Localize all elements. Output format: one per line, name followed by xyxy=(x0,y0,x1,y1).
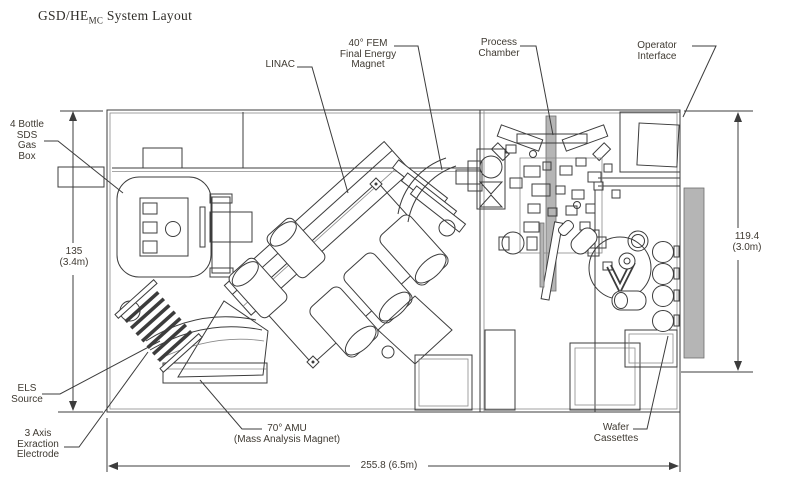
roof-vent-box xyxy=(143,148,182,168)
wafer-robot xyxy=(557,219,651,310)
label-amu-magnet: 70° AMU (Mass Analysis Magnet) xyxy=(234,424,340,445)
operator-interface-box xyxy=(620,112,680,172)
dimension-text-right: 119.4 (3.0m) xyxy=(733,232,762,253)
system-layout-page: GSD/HEMC System Layout xyxy=(0,0,787,495)
label-operator-interface: Operator Interface xyxy=(637,41,676,62)
gas-box xyxy=(117,177,211,277)
label-extraction-electrode: 3 Axis Exraction Electrode xyxy=(17,429,59,461)
label-els-source: ELS Source xyxy=(11,384,43,405)
dimension-text-left: 135 (3.4m) xyxy=(60,247,89,268)
label-linac: LINAC xyxy=(266,60,295,71)
label-wafer-cassettes: Wafer Cassettes xyxy=(594,423,638,444)
process-chamber-assembly xyxy=(477,116,620,300)
vacuum-pump-cylinders xyxy=(227,212,452,361)
label-fem: 40° FEM Final Energy Magnet xyxy=(340,39,396,71)
label-gas-box: 4 Bottle SDS Gas Box xyxy=(10,120,44,162)
wafer-cassette-circles xyxy=(653,242,680,332)
system-diagram xyxy=(0,0,787,495)
gas-box-protrusion xyxy=(58,167,104,187)
floor-cabinets xyxy=(415,330,677,410)
dimension-text-bottom: 255.8 (6.5m) xyxy=(361,461,418,472)
gray-panel xyxy=(684,188,704,358)
label-process-chamber: Process Chamber xyxy=(478,38,519,59)
